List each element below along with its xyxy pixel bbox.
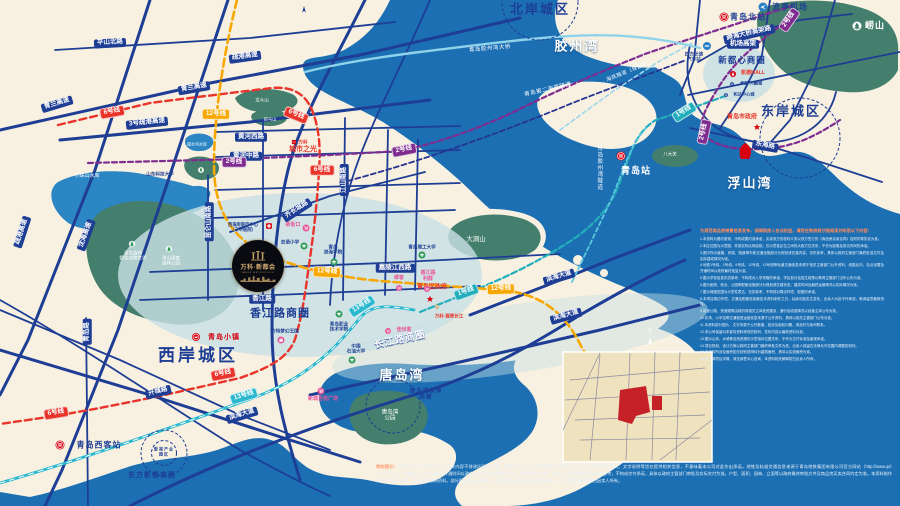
- inset-compass-north-label: 北: [647, 329, 653, 335]
- metro-line12-badge-3: 12号线: [487, 283, 516, 294]
- poi-label-xinjiekou: 新街口: [285, 223, 300, 229]
- vocational-college-icon: [336, 311, 343, 318]
- qingdao-station-icon: [617, 152, 626, 161]
- poi-label-qingdao-binhai-college: 青岛 滨海学院: [324, 245, 342, 256]
- road-label-kaicheng-road: 开城路: [145, 385, 172, 399]
- fantawild-castle-icon: [278, 337, 285, 344]
- sifang-bus-terminal-icon: [703, 42, 711, 50]
- metro-line13-badge-2: 13号线: [347, 294, 376, 318]
- road-label-airport-elevated: 机场高架: [727, 40, 759, 49]
- poi-label-shandong-science-tech-university: 山东科技大学: [146, 171, 174, 176]
- tunnel-label-subsea-planned: 海底隧道（规划中）: [606, 60, 654, 84]
- disclaimer-item-13: 13.图示山体、水域等自然资源仅示意相对位置关系，不作为交付标准及景观承诺。: [700, 337, 884, 342]
- park-label-forest-wildlife-world: 青岛森林 野生动物世界: [120, 251, 147, 262]
- bottom-note: 特别提示：本资料为广告宣传资料，相关内容不排除因政府规划、规定及出卖人未能控制的…: [376, 463, 892, 484]
- biz-label-tangdao-coastal: 唐岛湾滨海 商圈: [410, 389, 443, 402]
- wuyue-plaza-shopping-icon: [318, 388, 325, 395]
- road-label-qingdao-road: 青岛路: [83, 319, 92, 345]
- mountain-label-dadongshan: 大洞山: [466, 236, 486, 244]
- metro-line2-badge-3: 2号线: [696, 119, 711, 145]
- district-label-east-shore: 东岸城区: [761, 103, 821, 118]
- qingdao-west-station-icon: [56, 441, 65, 450]
- biz-label-xindouxin: 新都心商圈: [718, 55, 766, 65]
- poi-label-qingdao-town: 青岛小镇: [208, 334, 240, 342]
- laoshan-tree-icon: [852, 21, 862, 31]
- disclaimer-panel: 为规范商品房销售信息发布，保障购房人合法权益，请您在购房前仔细阅读并知悉以下内容…: [700, 228, 884, 364]
- disclaimer-item-15: 15.本资料所涉及面积如无特别说明均为建筑面积，具体以实测面积为准。: [700, 350, 884, 355]
- project-logo: 万科·新都会 VANKE METROPOLIS: [232, 240, 284, 292]
- disclaimer-item-8: 8.本项目周边环境、交通及配套信息截至本资料制作之日，后续可能发生变化，出卖人对…: [700, 297, 884, 308]
- station-label-qingdao-west: 青岛西客站: [77, 440, 122, 449]
- disclaimer-item-5: 5.图示学校信息仅供参考，不构成对入学资格的承诺，学区划分及招生政策以教育主管部…: [700, 276, 884, 281]
- poi-label-xiangjiang-liqun: 香江路 利群: [420, 271, 435, 283]
- liuting-airport-icon: [759, 3, 768, 12]
- poi-label-weike: 维客: [394, 276, 404, 282]
- biz-label-oriental-movie-metropolis: 东方影都商圈: [128, 472, 176, 480]
- station-label-qingdao-north: 青岛北站: [730, 12, 766, 21]
- disclaimer-item-6: 6.图示医院、商业、公园等配套设施部分为规划或在建状态，建成时间及最终运营情况以…: [700, 283, 884, 288]
- poi-label-wuyue-plaza: 新城吾悦广场: [308, 397, 338, 403]
- inset-north-compass-icon: [645, 337, 655, 347]
- disclaimer-items: 1.本资料为要约邀请，不构成要约或承诺，买卖双方的权利义务以双方签订的《商品房买…: [700, 237, 884, 363]
- vanke-city-light-logo-icon: [292, 140, 297, 145]
- poi-label-zhuoyue-darongcheng: 卓越·大融城: [740, 82, 762, 87]
- bridge-label-jiaozhou-bay-bridge: 青岛胶州湾大桥: [469, 44, 511, 54]
- station-label-liuting-airport: 流亭机场: [772, 2, 808, 11]
- disclaimer-heading: 为规范商品房销售信息发布，保障购房人合法权益，请您在购房前仔细阅读并知悉以下内容…: [700, 228, 884, 234]
- road-label-kunlunshan-south-road: 昆仑山南路: [205, 203, 214, 242]
- poi-label-qingdao-city-government: 青岛市政府: [727, 114, 757, 121]
- disclaimer-item-9: 9.高速公路、快速路等由政府或相关主体投资建设，通行及收费情况以经营主体公布为准…: [700, 309, 884, 314]
- poi-label-jusco: 佳世客: [396, 328, 411, 334]
- mountain-label-laoshan: 崂山: [865, 21, 885, 32]
- bottom-note-text: 本资料为广告宣传资料，相关内容不排除因政府规划、规定及出卖人未能控制的原因而发生…: [376, 464, 892, 483]
- weike-shopping-icon: [396, 285, 402, 291]
- poi-label-vanke-city-light: 城市之光: [289, 146, 317, 154]
- disclaimer-item-4: 4.地铁1号线、2号线、6号线、12号线、13号线等轨道交通信息来源于相关主管部…: [700, 263, 884, 274]
- biz-label-changjiang-road: 长江路商圈: [373, 329, 427, 351]
- road-label-shenhai-expwy: 沈海高速: [77, 219, 96, 252]
- poi-label-fantawild-dreamland: 方特梦幻王国: [271, 328, 299, 333]
- qingdao-town-icon: [192, 333, 200, 341]
- road-label-jiangshan-south-road: 江山南路: [340, 164, 349, 196]
- project-logo-subtitle: VANKE METROPOLIS: [241, 272, 274, 274]
- station-label-qingdao: 青岛站: [621, 166, 651, 177]
- metro-line1-badge-1: 1号线: [453, 283, 480, 301]
- binhai-college-icon: [331, 259, 338, 266]
- disclaimer-item-16: 16.欲了解项目详情，请至销售中心查询，本资料相关解释权归出卖人所有。: [700, 357, 884, 362]
- shandong-university-leaf-icon: [198, 167, 205, 174]
- district-label-west-shore: 西岸城区: [158, 346, 238, 366]
- biz-label-xiangjiang-road: 香江路商圈: [250, 308, 310, 321]
- sea-label-jiaozhou-bay: 胶州湾: [554, 38, 599, 53]
- metro-line1-badge-2: 1号线: [671, 101, 697, 123]
- disclaimer-item-14: 14.项目规划、设计方案以政府主管部门最终审批文件为准，出卖人保留在法律允许范围…: [700, 344, 884, 349]
- disclaimer-item-10: 10.机场、火车站等交通枢纽运营信息来源于公开资料，具体以相关主管部门公布为准。: [700, 316, 884, 321]
- sea-label-tangdao-bay: 唐岛湾: [379, 367, 424, 382]
- project-logo-title: 万科·新都会: [241, 262, 276, 271]
- west-coast-medical-center-icon: [266, 223, 273, 230]
- disclaimer-item-7: 7.图示商圈范围为示意性表达，仅供参考，不构成对周边环境、配套的承诺。: [700, 290, 884, 295]
- road-label-binhai-avenue-sw: 滨海大道: [225, 406, 258, 423]
- metro-line13-badge-1: 13号线: [229, 387, 259, 405]
- road-label-port-expwy-west: 疏港高速: [13, 215, 31, 248]
- poi-label-heda-central-city: 和达中心城: [734, 93, 755, 98]
- metro-line2-badge-2: 2号线: [391, 142, 417, 157]
- road-label-huanghe-west-road: 黄河西路: [235, 133, 267, 142]
- poi-label-district-government: 青岛区政府: [417, 284, 447, 291]
- poi-label-vanke-prefix: 万科: [298, 139, 307, 144]
- sea-label-fushan-bay: 浮山湾: [727, 175, 772, 190]
- metro-line2-badge-4: 2号线: [778, 7, 801, 33]
- mountain-label-zhuamashan: 抓马山: [264, 118, 277, 123]
- vanke-jade-changjiang-pin-icon: [434, 304, 440, 310]
- metro-line6-badge-1: 6号线: [99, 105, 125, 120]
- poi-label-capitaland-mall: 凯德MALL: [741, 71, 765, 77]
- petroleum-university-icon: [349, 357, 356, 364]
- jusco-shopping-icon: [385, 328, 391, 334]
- district-label-north-shore: 北岸城区: [510, 1, 570, 16]
- road-label-cross-sea-bridge-elevated: 跨海大桥高架路: [723, 24, 775, 44]
- road-label-jialingjiang-west-road: 嘉陵江西路: [376, 264, 415, 273]
- poi-label-west-coast-medical-center: 西海岸医疗中心 （三甲医院）: [228, 222, 258, 232]
- bilingual-primary-school-icon: [301, 243, 308, 250]
- mountain-label-longdoushan: 龙斗山: [255, 97, 269, 102]
- metro-line6-badge-3: 6号线: [310, 165, 335, 176]
- park-label-zhushan-national-forest: 珠山国家 森林公园: [162, 256, 180, 267]
- zhuoyue-darongcheng-icon: [730, 82, 735, 87]
- project-logo-skyline: [240, 275, 276, 282]
- capitaland-mall-icon: [730, 71, 736, 77]
- road-label-binhai-avenue-mid: 滨海大道: [549, 308, 582, 325]
- lake-label-xiaozhushan-reservoir: 小珠山水库: [74, 174, 99, 180]
- road-label-binhai-avenue-ne: 滨海大道: [542, 268, 575, 285]
- disclaimer-item-3: 3.图中所示道路、桥梁、隧道等市政交通设施部分为规划或在建内容，仅供参考，具体以…: [700, 251, 884, 262]
- heda-central-city-icon: [724, 93, 729, 98]
- metro-line2-badge-1: 2号线: [222, 157, 247, 168]
- disclaimer-item-2: 2.本区位图为示意图，非按实际比例绘制，仅示意各区位之间的大致方位关系，不作为距…: [700, 244, 884, 249]
- project-logo-ornament: [250, 251, 266, 261]
- poi-label-vanke-jade-changjiang: 万科·翡翠长江: [435, 313, 464, 318]
- area-label-badaguan: 八大关: [663, 151, 677, 156]
- poi-label-bilingual-primary-school: 双语小学: [281, 239, 299, 244]
- xinjiekou-shopping-icon: [303, 225, 310, 232]
- road-label-donghai-road: 东海路: [752, 140, 779, 153]
- vanke-metropolis-location-map: 胶州湾浮山湾唐岛湾北岸城区东岸城区西岸城区新都心商圈香江路商圈长江路商圈唐岛湾滨…: [0, 0, 900, 506]
- road-label-xiangjiang-road: 香江路: [249, 295, 275, 304]
- tunnel-label-second-subsea-tunnel: 青岛第二海底隧道: [524, 81, 572, 98]
- liqun-shopping-icon: [424, 286, 430, 292]
- disclaimer-item-12: 12.本公司保留对本宣传资料修改的权利，发布内容以最新资料为准。: [700, 330, 884, 335]
- metro-line6-badge-2: 6号线: [283, 106, 310, 125]
- road-label-pingshan-north-road: 平山北路: [94, 38, 126, 48]
- qingdao-north-station-icon: [720, 13, 729, 22]
- forest-wildlife-tree-icon: [129, 241, 136, 248]
- tunnel-label-jiaozhou-bay-tunnel: 青岛胶州湾隧道: [596, 145, 602, 191]
- park-label-tangdaowan-park: 唐岛湾 公园: [382, 410, 399, 423]
- road-label-qinglan-expwy-east: 青兰高速: [178, 81, 211, 95]
- poi-label-qingdao-tech-university: 青岛理工大学: [408, 244, 436, 249]
- zhushan-forest-tree-icon: [166, 246, 173, 253]
- road-label-port-expwy-north: 疏港高速: [229, 51, 262, 64]
- disclaimer-item-11: 11.本资料部分图片、文字来源于公开渠道，如涉及版权问题，请及时与我司联系。: [700, 323, 884, 328]
- metro-line12-badge-1: 12号线: [202, 109, 230, 120]
- label-film-industry-park: 影视产业 园区: [154, 447, 174, 456]
- north-compass-icon: [300, 6, 309, 15]
- road-label-huanghe-middle-road: 黄河中路: [230, 152, 262, 161]
- road-label-qinglan-expwy-west: 青兰高速: [40, 95, 73, 112]
- lake-label-tianshuihe-reservoir: 甜水河水库: [187, 143, 207, 148]
- city-government-star-icon: [754, 124, 761, 131]
- disclaimer-item-1: 1.本资料为要约邀请，不构成要约或承诺，买卖双方的权利义务以双方签订的《商品房买…: [700, 237, 884, 242]
- bottom-note-lead: 特别提示：: [376, 464, 398, 469]
- district-government-star-icon: [427, 296, 434, 303]
- poi-label-china-petroleum-university: 中国 石油大学: [347, 344, 365, 355]
- poi-label-sifang-bus-terminal: 四方长途 汽车站: [685, 52, 703, 63]
- road-label-qichangcheng-road: 齐长城路: [281, 198, 312, 223]
- road-label-no3-port-expwy: 3号疏港高速: [126, 117, 169, 130]
- tech-university-icon: [419, 252, 426, 259]
- metro-line6-badge-5: 6号线: [43, 406, 69, 420]
- poi-label-qingdao-vocational-college: 青岛职业 技术学院: [330, 322, 348, 333]
- metro-line12-badge-2: 12号线: [313, 266, 342, 278]
- metro-line6-badge-4: 6号线: [210, 366, 236, 381]
